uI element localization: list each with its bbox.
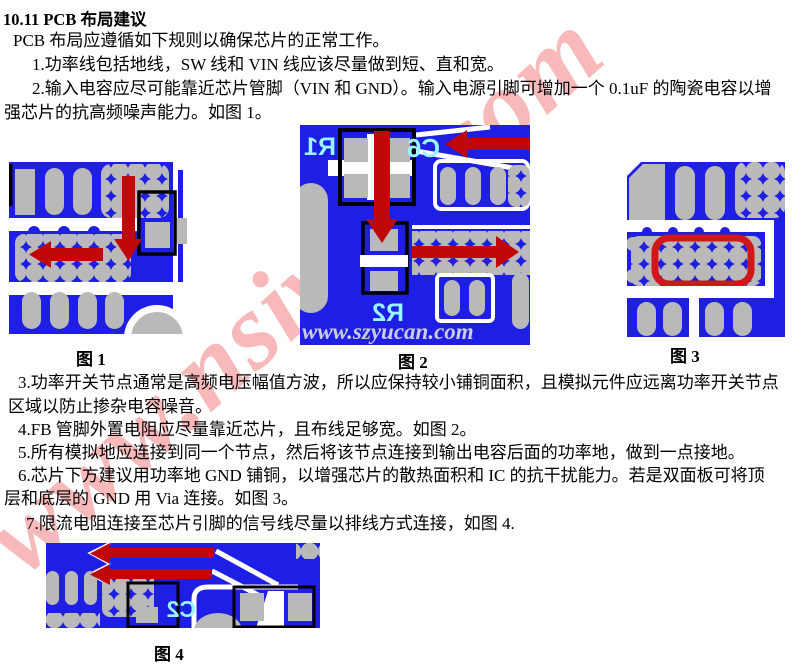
figure3-pcb-image xyxy=(627,162,785,337)
document-page: www.nsiway.com 10.11 PCB 布局建议 PCB 布局应遵循如… xyxy=(0,0,802,665)
designator-r1: R1 xyxy=(304,133,336,161)
via-grid xyxy=(631,236,761,286)
component-pad xyxy=(145,222,170,248)
body-line-item2a: 2.输入电容应尽可能靠近芯片管脚（VIN 和 GND）。输入电源引脚可增加一个 … xyxy=(32,79,772,99)
component-r1 xyxy=(328,130,414,204)
figure3-caption: 图 3 xyxy=(670,342,700,367)
body-line-item6b: 层和底层的 GND 用 Via 连接。如图 3。 xyxy=(4,489,298,509)
figure1-pcb-image xyxy=(9,162,187,334)
trace-band xyxy=(627,286,774,298)
body-line-intro: PCB 布局应遵循如下规则以确保芯片的正常工作。 xyxy=(13,31,389,51)
figure2-caption: 图 2 xyxy=(398,348,428,373)
body-line-item3a: 3.功率开关节点通常是高频电压幅值方波，所以应保持较小铺铜面积，且模拟元件应远离… xyxy=(18,373,779,393)
figure1-caption: 图 1 xyxy=(76,345,106,370)
body-line-item2b: 强芯片的抗高频噪声能力。如图 1。 xyxy=(4,103,272,123)
figure2-pcb-image: R1 C6 R2 www.szyucan.com xyxy=(300,125,530,345)
figure2-watermark: www.szyucan.com xyxy=(302,319,474,344)
trace-band xyxy=(9,218,137,231)
designator-c6: C6 xyxy=(407,133,440,163)
figure4-pcb-image: C2 xyxy=(46,543,320,628)
via-grid xyxy=(296,543,320,559)
section-heading: 10.11 PCB 布局建议 xyxy=(3,6,146,30)
body-line-item3b: 区域以防止掺杂电容噪音。 xyxy=(8,397,212,417)
body-line-item1: 1.功率线包括地线，SW 线和 VIN 线应该尽量做到短、直和宽。 xyxy=(32,55,504,75)
figure4-caption: 图 4 xyxy=(154,640,184,665)
designator-c2: C2 xyxy=(167,596,196,622)
trace-line xyxy=(689,286,699,337)
body-line-item7: 7.限流电阻连接至芯片引脚的信号线尽量以排线方式连接，如图 4. xyxy=(26,514,515,534)
body-line-item5: 5.所有模拟地应连接到同一个节点，然后将该节点连接到输出电容后面的功率地，做到一… xyxy=(18,443,745,463)
body-line-item4: 4.FB 管脚外置电阻应尽量靠近芯片，且布线足够宽。如图 2。 xyxy=(18,420,477,440)
pcb-pad-capsule xyxy=(300,183,328,313)
body-line-item6a: 6.芯片下方建议用功率地 GND 铺铜，以增强芯片的散热面积和 IC 的抗干扰能… xyxy=(18,466,765,486)
trace-line xyxy=(765,220,774,288)
